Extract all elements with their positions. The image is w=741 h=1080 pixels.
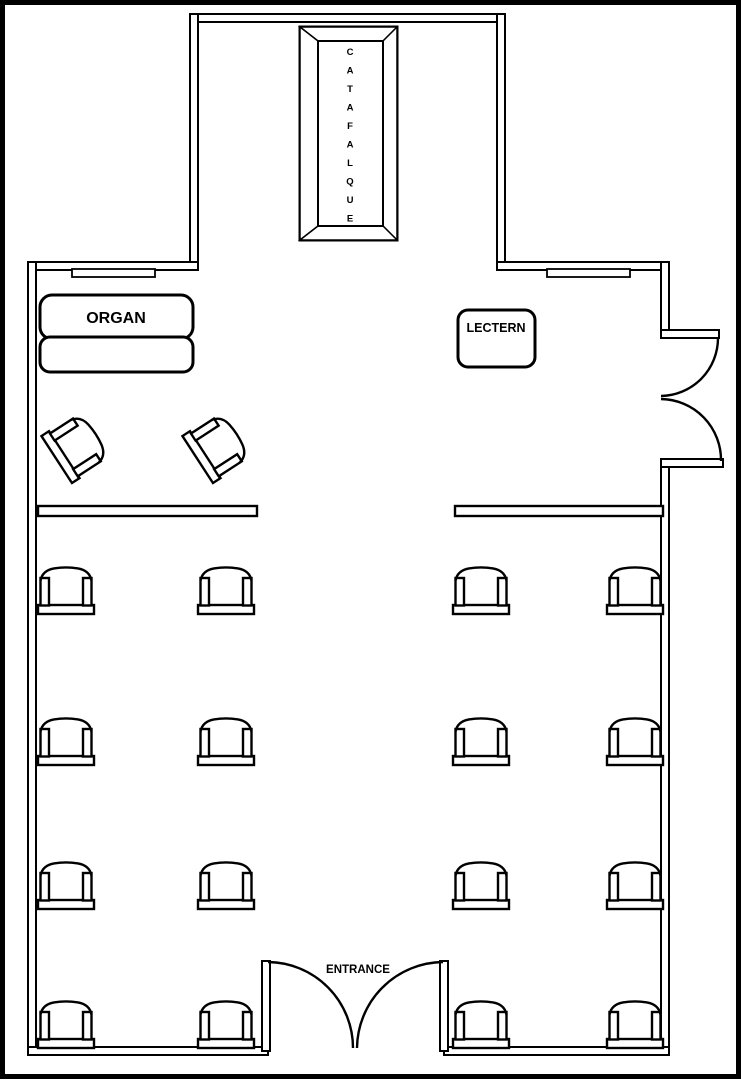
catafalque-bevel-left [300, 27, 318, 240]
wall-chancel-top [190, 14, 505, 22]
chair-r1c2 [198, 568, 254, 614]
celebrant-chair-right [182, 411, 251, 483]
wall-left [28, 262, 36, 1055]
wall-chancel-left [190, 14, 198, 268]
floor-plan: ENTRANCE C A T A F A L Q U E ORGAN LECTE… [0, 0, 741, 1080]
celebrant-chair-left [41, 411, 110, 483]
svg-text:Q: Q [346, 177, 353, 188]
chair-r4c1 [38, 1002, 94, 1048]
wall-recess-right [547, 269, 630, 277]
svg-text:T: T [347, 84, 353, 95]
rail-left [38, 506, 257, 516]
catafalque-bevel-right [383, 27, 397, 240]
catafalque-bevel-bottom [300, 226, 397, 240]
side-door-leaf-bottom [661, 459, 723, 467]
wall-right-upper [661, 262, 669, 337]
chair-r4c2 [198, 1002, 254, 1048]
lectern-body [458, 310, 535, 367]
svg-text:A: A [347, 140, 354, 151]
chair-r3c2 [198, 863, 254, 909]
chair-r2c4 [607, 719, 663, 765]
svg-text:L: L [347, 158, 353, 169]
svg-text:F: F [347, 121, 353, 132]
chair-r1c1 [38, 568, 94, 614]
rail-right [455, 506, 663, 516]
chair-r3c3 [453, 863, 509, 909]
wall-recess-left [72, 269, 155, 277]
svg-text:A: A [347, 103, 354, 114]
entrance-door-leaf-left [262, 961, 270, 1051]
chair-r3c1 [38, 863, 94, 909]
chair-r1c3 [453, 568, 509, 614]
entrance-door-leaf-right [440, 961, 448, 1051]
svg-text:A: A [347, 66, 354, 77]
side-door-swing-arc-bottom [661, 399, 721, 461]
chair-r2c3 [453, 719, 509, 765]
chair-r3c4 [607, 863, 663, 909]
lectern-label: LECTERN [466, 321, 525, 335]
organ-bench [40, 337, 193, 372]
chair-r2c1 [38, 719, 94, 765]
chair-r2c2 [198, 719, 254, 765]
svg-text:C: C [347, 47, 354, 58]
svg-text:E: E [347, 214, 353, 225]
svg-text:U: U [347, 195, 354, 206]
chair-r4c4 [607, 1002, 663, 1048]
organ: ORGAN [40, 295, 193, 372]
side-door-leaf-top [661, 330, 719, 338]
organ-label: ORGAN [86, 310, 146, 327]
entrance-label: ENTRANCE [326, 964, 390, 976]
lectern: LECTERN [458, 310, 535, 367]
wall-chancel-right [497, 14, 505, 268]
floor-plan-svg: ENTRANCE C A T A F A L Q U E ORGAN LECTE… [0, 0, 741, 1080]
catafalque: C A T A F A L Q U E [300, 27, 397, 240]
chair-r4c3 [453, 1002, 509, 1048]
chair-r1c4 [607, 568, 663, 614]
side-door-swing-arc-top [661, 338, 718, 396]
